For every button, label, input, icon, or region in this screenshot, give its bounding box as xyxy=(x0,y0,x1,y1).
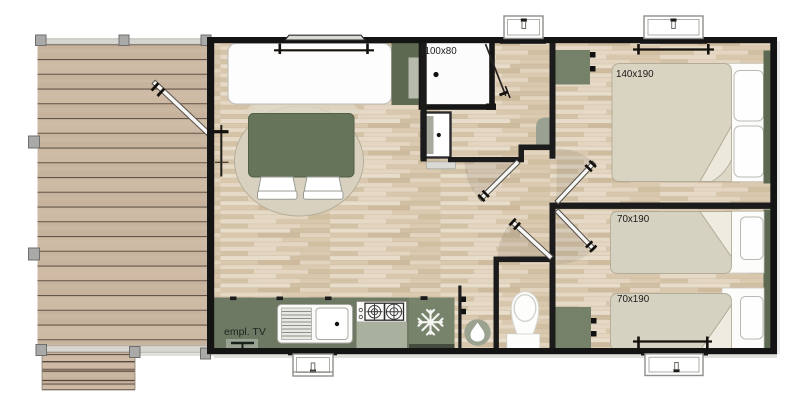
svg-text:70x190: 70x190 xyxy=(617,214,650,225)
svg-text:140x190: 140x190 xyxy=(616,69,654,80)
svg-text:empl. TV: empl. TV xyxy=(224,326,266,338)
svg-text:70x190: 70x190 xyxy=(617,294,650,305)
svg-text:100x80: 100x80 xyxy=(425,46,458,57)
